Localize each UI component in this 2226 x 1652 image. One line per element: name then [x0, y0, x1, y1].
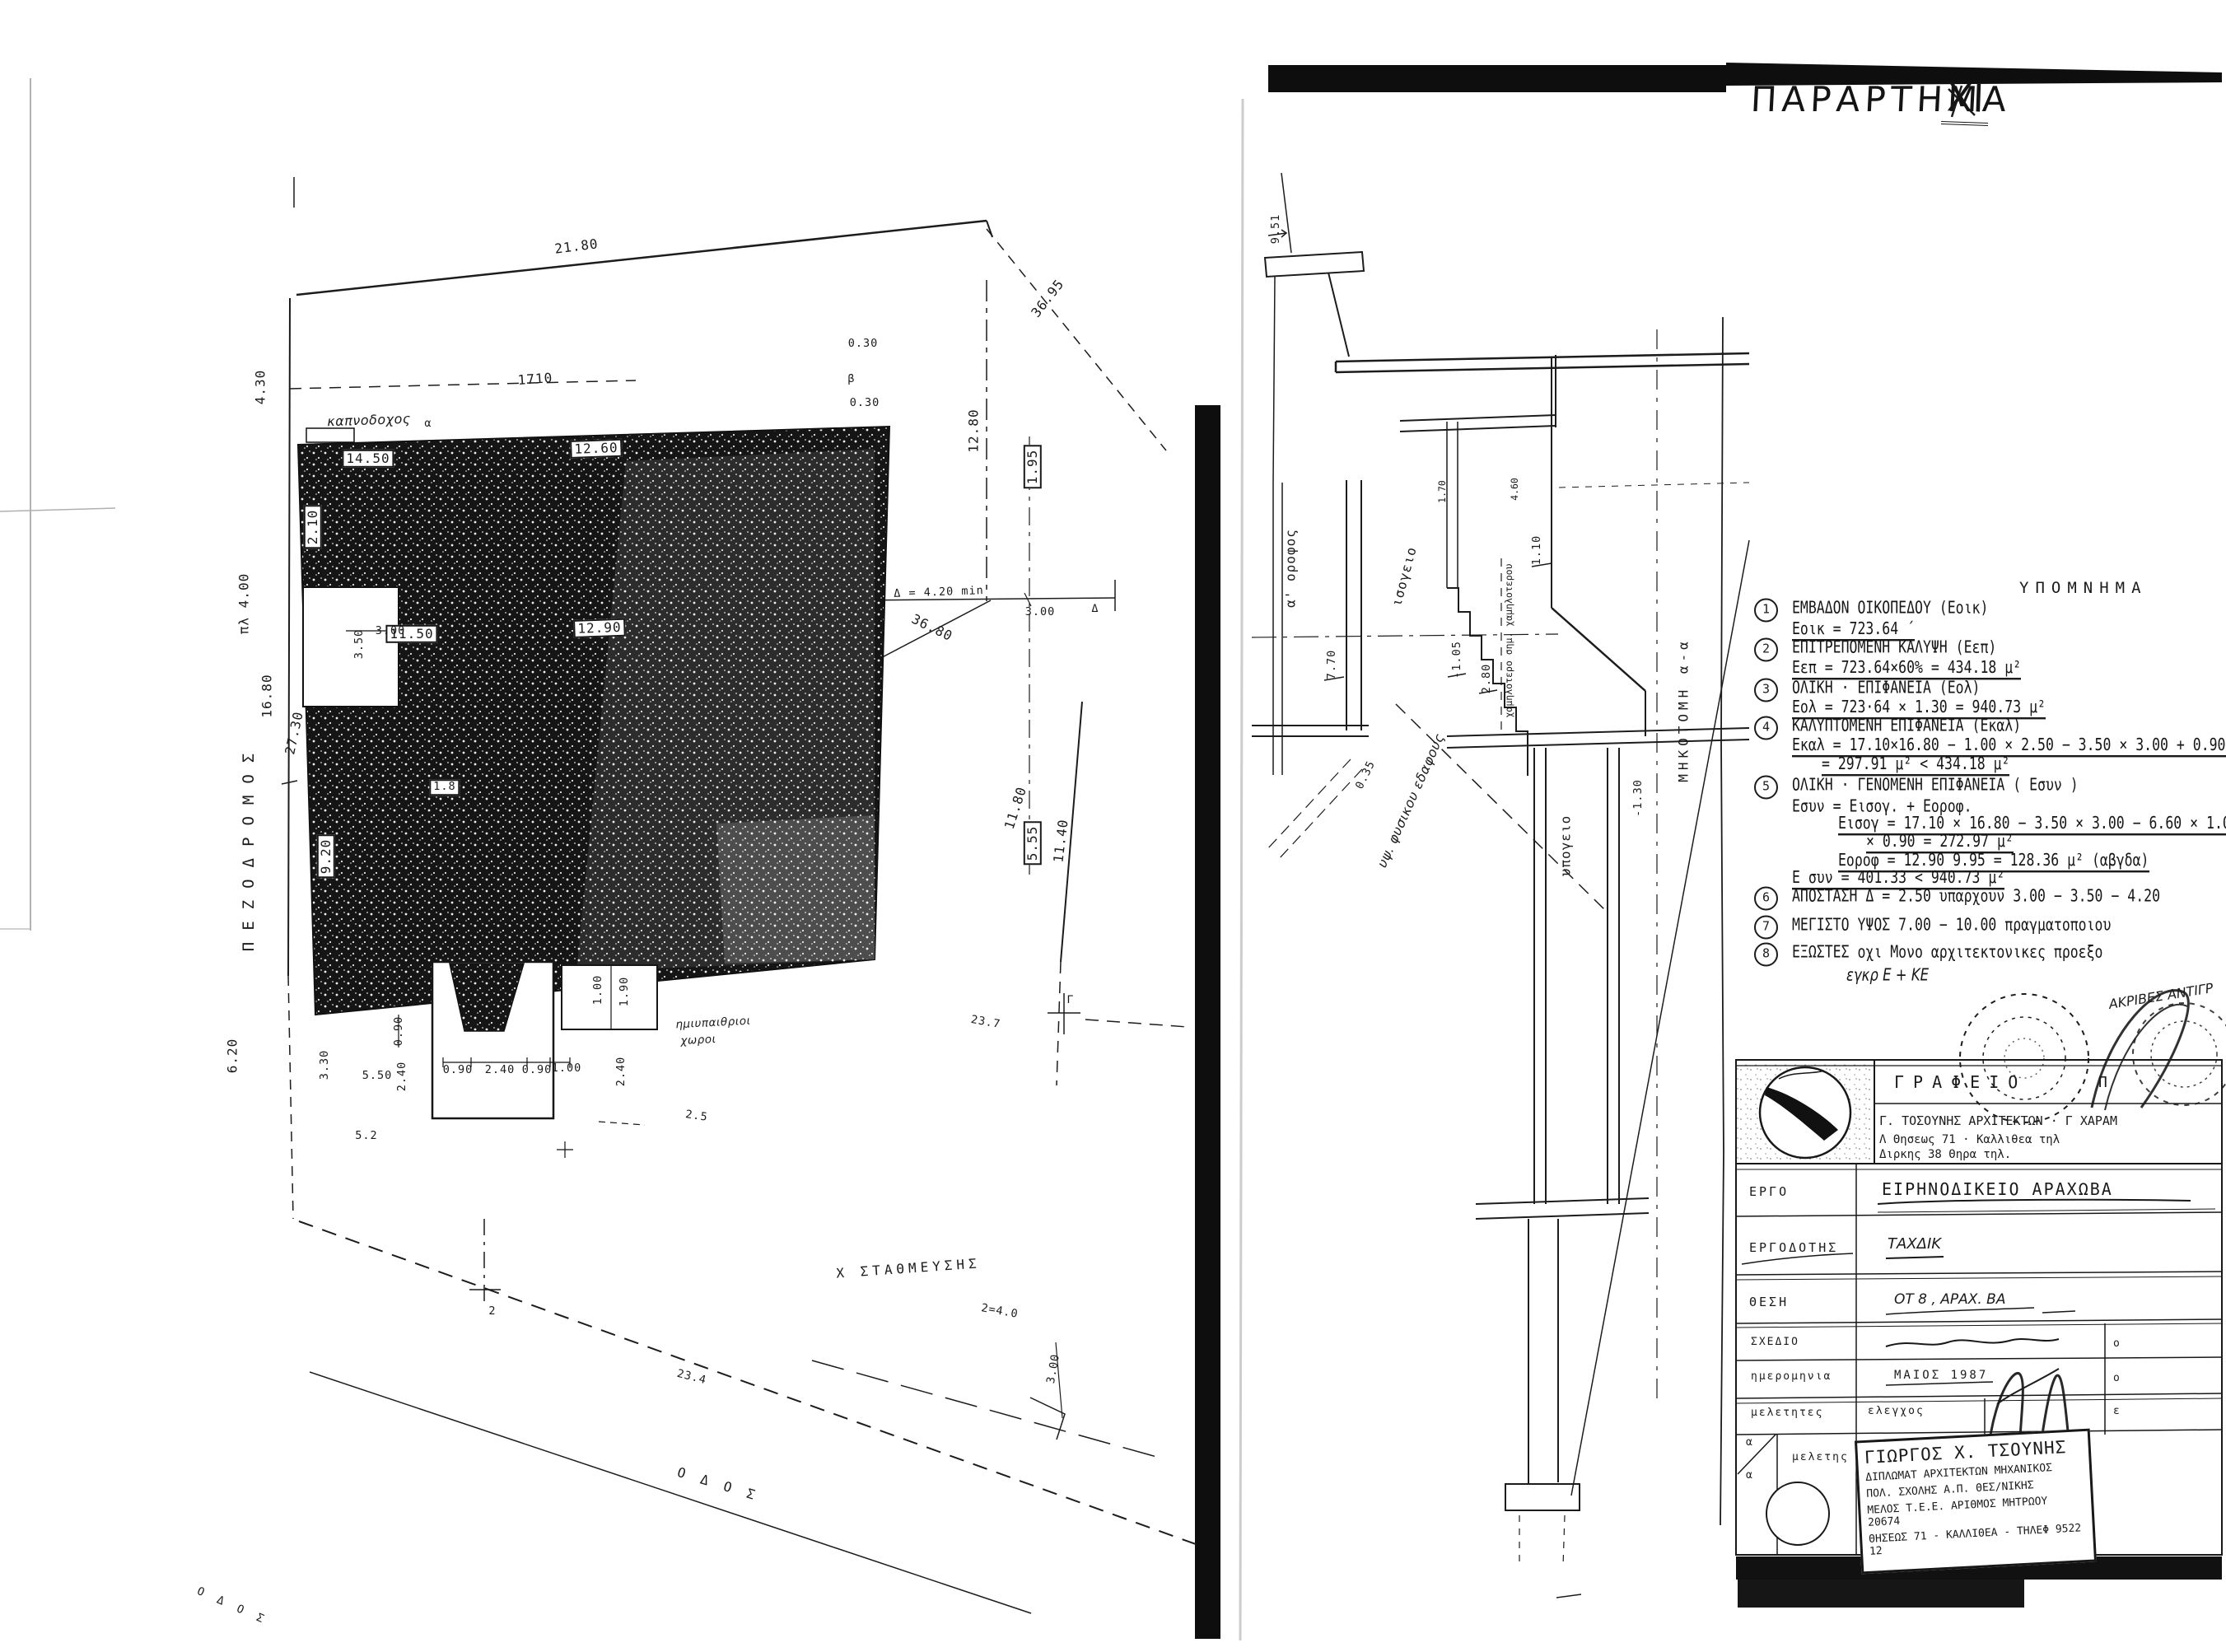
- legend-item-number: 6: [1754, 887, 1778, 911]
- legend-item-number: 3: [1754, 679, 1778, 702]
- drawing-label: 5.2: [355, 1129, 377, 1142]
- drawing-label: 9.20: [317, 835, 335, 879]
- drawing-label: 0.90: [522, 1063, 553, 1076]
- drawing-label: α' οροφος: [1283, 529, 1299, 608]
- drawing-label: 2.80: [1480, 664, 1493, 694]
- drawing-label: -1.05: [1450, 641, 1463, 679]
- drawing-label: 12.60: [570, 439, 623, 460]
- legend-item-line: εγκρ Ε + ΚΕ: [1846, 965, 1929, 984]
- drawing-label: 3.00: [376, 624, 406, 637]
- row-label-meletis: μελετης: [1792, 1451, 1849, 1463]
- office-line3: Διρκης 38 Θηρα τηλ.: [1879, 1148, 2011, 1161]
- row-value-ergo: ΕΙΡΗΝΟΔΙΚΕΙΟ ΑΡΑΧΩΒΑ: [1882, 1179, 2113, 1199]
- drawing-label: ΠΕΖΟΔΡΟΜΟΣ: [240, 742, 258, 951]
- drawing-label: 3.30: [318, 1050, 331, 1080]
- row-label-thesi: ΘΕΣΗ: [1749, 1295, 1789, 1309]
- drawing-label: 4.60: [1509, 478, 1520, 501]
- cell-letter: ο: [2113, 1337, 2121, 1350]
- row-value-ergodotis: ΤΑΧΔΙΚ: [1888, 1235, 1941, 1253]
- legend-title: ΥΠΟΜΝΗΜΑ: [2019, 579, 2148, 597]
- row-label-ergodotis: ΕΡΓΟΔΟΤΗΣ: [1749, 1240, 1838, 1255]
- cell-letter: ο: [2113, 1372, 2121, 1384]
- legend-item-number: 2: [1754, 638, 1778, 662]
- drawing-label: Γ: [1066, 993, 1074, 1006]
- row-label-elegxos: ελεγχος: [1868, 1405, 1925, 1417]
- legend-item-number: 8: [1754, 943, 1778, 967]
- drawing-label: 2: [488, 1304, 496, 1318]
- drawing-label: 1.00: [552, 1062, 582, 1075]
- drawing-label: ΜΗΚΟΤΟΜΗ α-α: [1676, 637, 1692, 782]
- drawing-label: 3.50: [352, 629, 366, 660]
- drawing-label: 1.10: [1530, 535, 1543, 566]
- row-label-sxedio: ΣΧΕΔΙΟ: [1751, 1336, 1799, 1348]
- office-header: ΓΡΑΦΕΙΟ: [1894, 1072, 2027, 1092]
- drawing-label: 2.10: [304, 506, 322, 549]
- section-linework: [1252, 173, 1749, 1598]
- legend-item-line: = 297.91 μ² < 434.18 μ²: [1822, 754, 2009, 777]
- row-label-date: ημερομηνια: [1751, 1370, 1832, 1383]
- architect-stamp: ΓΙΩΡΓΟΣ Χ. ΤΣΟΥΝΗΣ ΔΙΠΛΩΜΑΤ ΑΡΧΙΤΕΚΤΩΝ Μ…: [1855, 1429, 2097, 1575]
- drawing-label: 1.70: [1436, 480, 1448, 503]
- page-title-number: XI: [1941, 75, 1990, 126]
- legend-item-line: ΟΛΙΚΗ · ΓΕΝΟΜΕΝΗ ΕΠΙΦΑΝΕΙΑ ( Εσυν ): [1792, 775, 2079, 794]
- drawing-label: 2.40: [395, 1062, 408, 1092]
- drawing-label: 4.30: [253, 370, 268, 405]
- drawing-label: 0.30: [848, 337, 879, 350]
- drawing-label: 7.70: [1325, 650, 1338, 680]
- legend-item-line: ΜΕΓΙΣΤΟ ΥΨΟΣ 7.00 − 10.00 πραγματοποιου: [1792, 915, 2111, 934]
- drawing-label: πλ 4.00: [236, 573, 252, 634]
- legend-item-line: ΟΛΙΚΗ · ΕΠΙΦΑΝΕΙΑ (Εολ): [1792, 678, 1980, 697]
- drawing-label: 2.40: [485, 1063, 516, 1076]
- legend-item-number: 7: [1754, 916, 1778, 940]
- legend-item-line: ΑΠΟΣΤΑΣΗ Δ = 2.50 υπαρχουν 3.00 − 3.50 −…: [1792, 886, 2160, 905]
- row-value-thesi: ΟΤ 8 , ΑΡΑΧ. ΒΑ: [1894, 1291, 2005, 1308]
- drawing-label: 16.80: [259, 674, 275, 717]
- drawing-label: 1.90: [618, 977, 631, 1007]
- drawing-label: 1.00: [591, 975, 604, 1006]
- scanned-drawing-sheet: ΠΑΡΑΡΤΗΜΑ XI 21.8017104.30καπνοδοχοςαβ0.…: [0, 0, 2226, 1652]
- row-label-ergo: ΕΡΓΟ: [1749, 1184, 1789, 1199]
- legend-item-number: 1: [1754, 599, 1778, 623]
- drawing-label: 1.95: [1024, 446, 1042, 489]
- drawing-label: 0.90: [392, 1016, 405, 1047]
- drawing-label: υπογειο: [1558, 815, 1574, 876]
- legend-item-number: 5: [1754, 776, 1778, 800]
- office-line1: Γ. ΤΟΣΟΥΝΗΣ ΑΡΧΙΤΕΚΤΩΝ · Γ ΧΑΡΑΜ: [1879, 1113, 2117, 1128]
- drawing-label: 0.90: [443, 1063, 474, 1076]
- legend-item-line: ΕΠΙΤΡΕΠΟΜΕΝΗ ΚΑΛΥΨΗ (Εεπ): [1792, 637, 1996, 656]
- drawing-label: καπνοδοχος: [327, 411, 411, 430]
- drawing-label: χωροι: [680, 1033, 716, 1048]
- drawing-label: 0.30: [850, 396, 880, 409]
- drawing-label: 5.55: [1024, 822, 1042, 866]
- legend-item-line: Εεπ = 723.64×60% = 434.18 μ²: [1792, 658, 2021, 680]
- legend-item-number: 4: [1754, 716, 1778, 740]
- drawing-label: 6.20: [225, 1038, 240, 1074]
- drawing-label: 1.8: [429, 779, 460, 796]
- drawing-label: β: [847, 372, 855, 385]
- drawing-label: -1.30: [1631, 779, 1645, 817]
- drawing-label: α: [424, 417, 432, 430]
- drawing-label: Δ: [1091, 602, 1099, 615]
- drawing-label: χαμηλοτερο σημ. χαμηλοτερου: [1503, 564, 1514, 718]
- drawing-label: 1710: [517, 370, 553, 388]
- cell-letter: ε: [2113, 1405, 2121, 1417]
- building-footprint: [298, 427, 889, 1158]
- legend-item-line: ΚΑΛΥΠΤΟΜΕΝΗ ΕΠΙΦΑΝΕΙΑ (Εκαλ): [1792, 716, 2021, 735]
- row-value-date: ΜΑΙΟΣ 1987: [1894, 1369, 1988, 1382]
- legend-item-line: ΕΞΩΣΤΕΣ οχι Μονο αρχιτεκτονικες προεξο: [1792, 942, 2103, 961]
- office-line2: Λ Θησεως 71 · Καλλιθεα τηλ: [1879, 1133, 2060, 1146]
- drawing-label: 2.40: [614, 1057, 628, 1087]
- drawing-label: 12.90: [573, 618, 626, 639]
- row-label-meletites: μελετητες: [1751, 1407, 1823, 1419]
- drawing-label: 14.50: [342, 450, 394, 468]
- office-header-right: Π: [2098, 1074, 2107, 1091]
- cell-letter: α: [1746, 1469, 1754, 1482]
- drawing-label: 12.80: [966, 408, 982, 452]
- drawing-label: 9.51: [1269, 214, 1282, 245]
- drawing-label: 3.00: [1025, 605, 1056, 618]
- cell-letter: α: [1746, 1436, 1754, 1449]
- legend-item-line: ΕΜΒΑΔΟΝ ΟΙΚΟΠΕΔΟΥ (Εοικ): [1792, 598, 1988, 617]
- drawing-label: 5.50: [362, 1069, 393, 1082]
